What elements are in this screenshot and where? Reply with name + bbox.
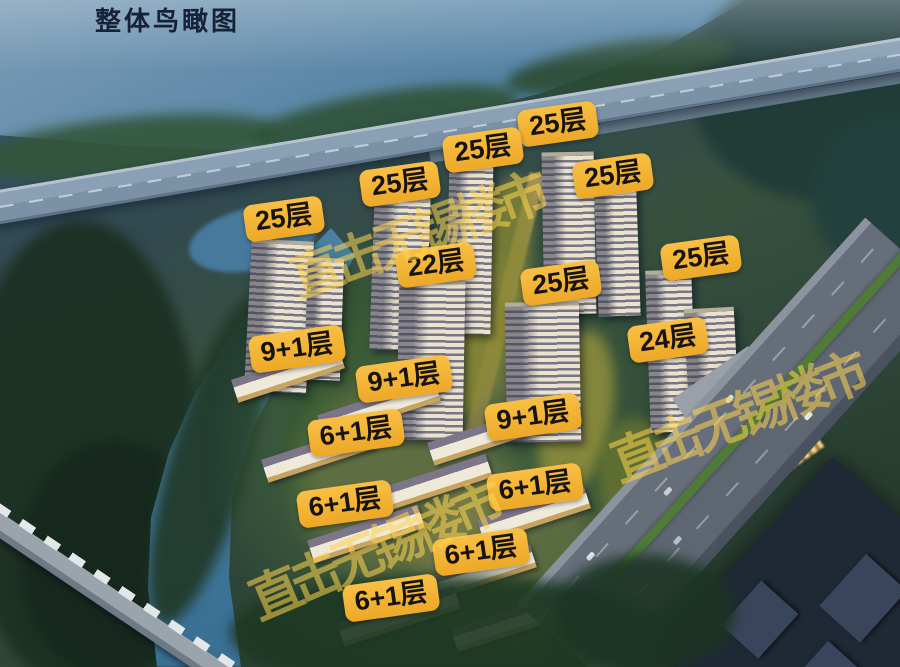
highrise-tower xyxy=(397,279,466,440)
lowrise-slab-building xyxy=(477,485,591,542)
lowrise-slab-building xyxy=(371,454,493,514)
page-title: 整体鸟瞰图 xyxy=(95,1,240,38)
dark-rooftop xyxy=(768,641,873,667)
car xyxy=(803,411,813,421)
car xyxy=(663,486,673,496)
highrise-tower xyxy=(542,152,597,315)
birdseye-rendering: 整体鸟瞰图 25层25层25层25层25层22层25层25层24层9+1层9+1… xyxy=(0,0,900,667)
dark-rooftop xyxy=(819,554,900,643)
lowrise-slab-building xyxy=(261,425,375,482)
lowrise-slab-building xyxy=(307,505,425,564)
south-trees xyxy=(555,555,735,667)
highrise-tower xyxy=(593,161,640,316)
